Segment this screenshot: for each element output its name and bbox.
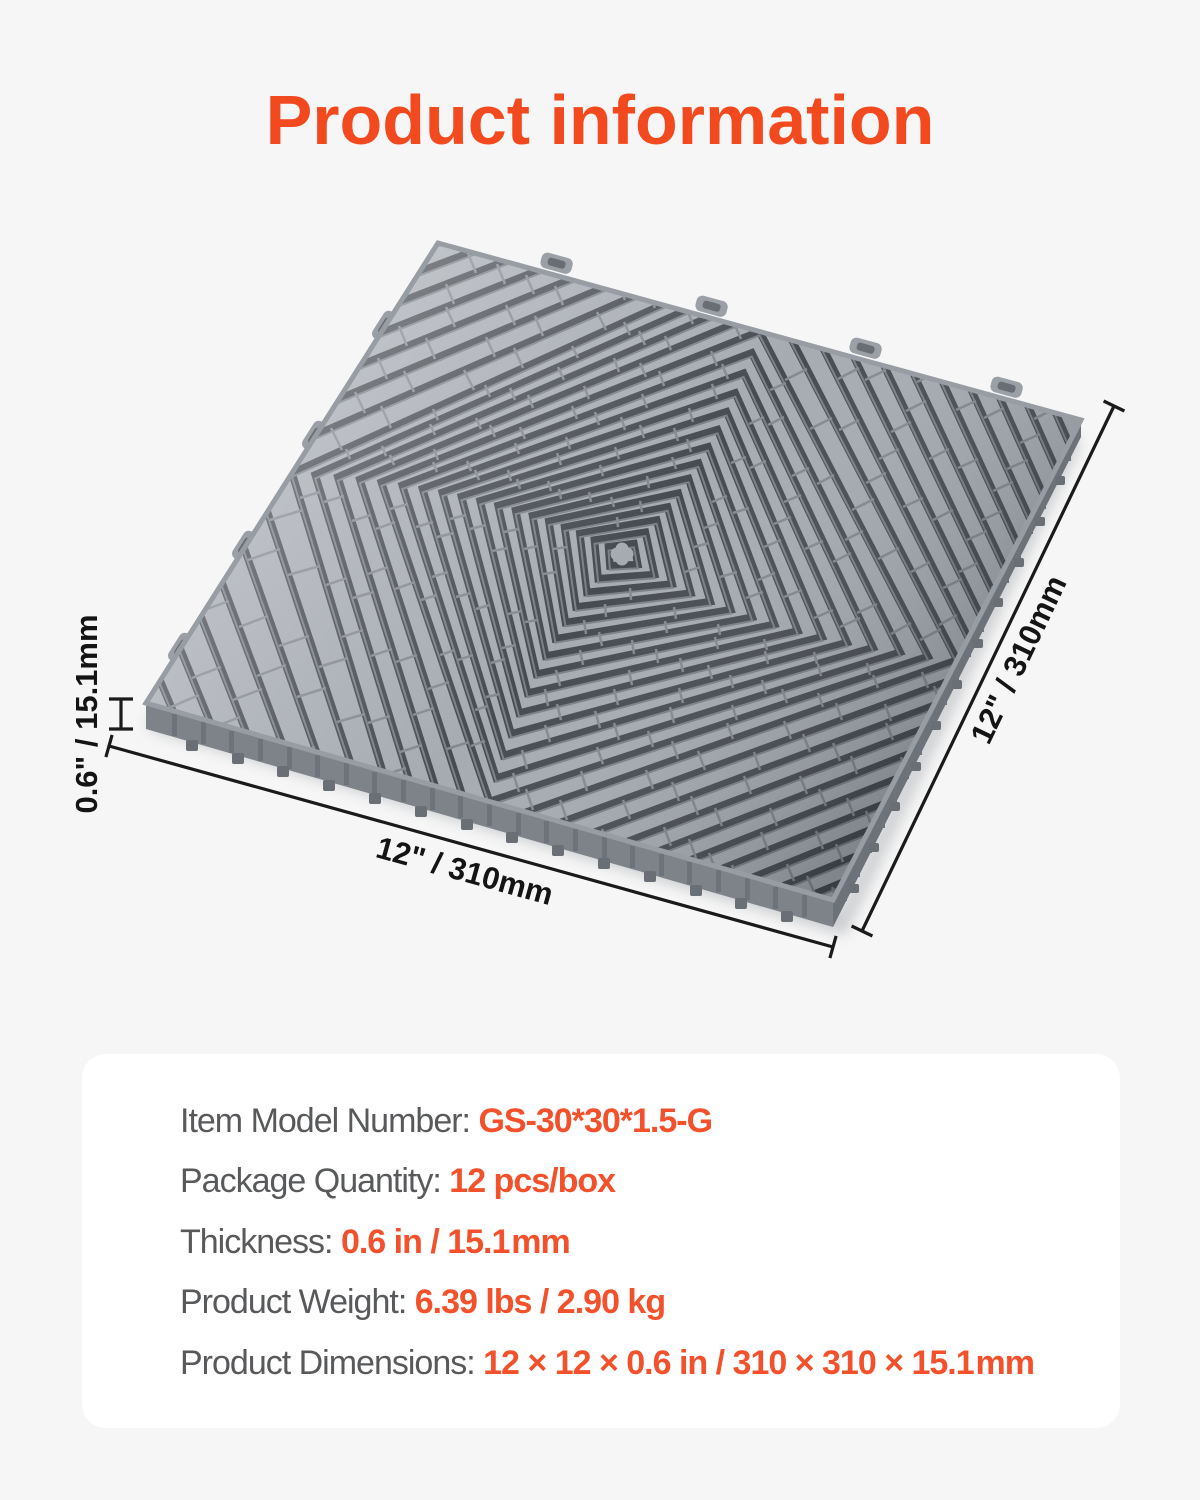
svg-text:12" / 310mm: 12" / 310mm: [372, 830, 557, 912]
svg-text:0.6" / 15.1mm: 0.6" / 15.1mm: [69, 614, 104, 813]
